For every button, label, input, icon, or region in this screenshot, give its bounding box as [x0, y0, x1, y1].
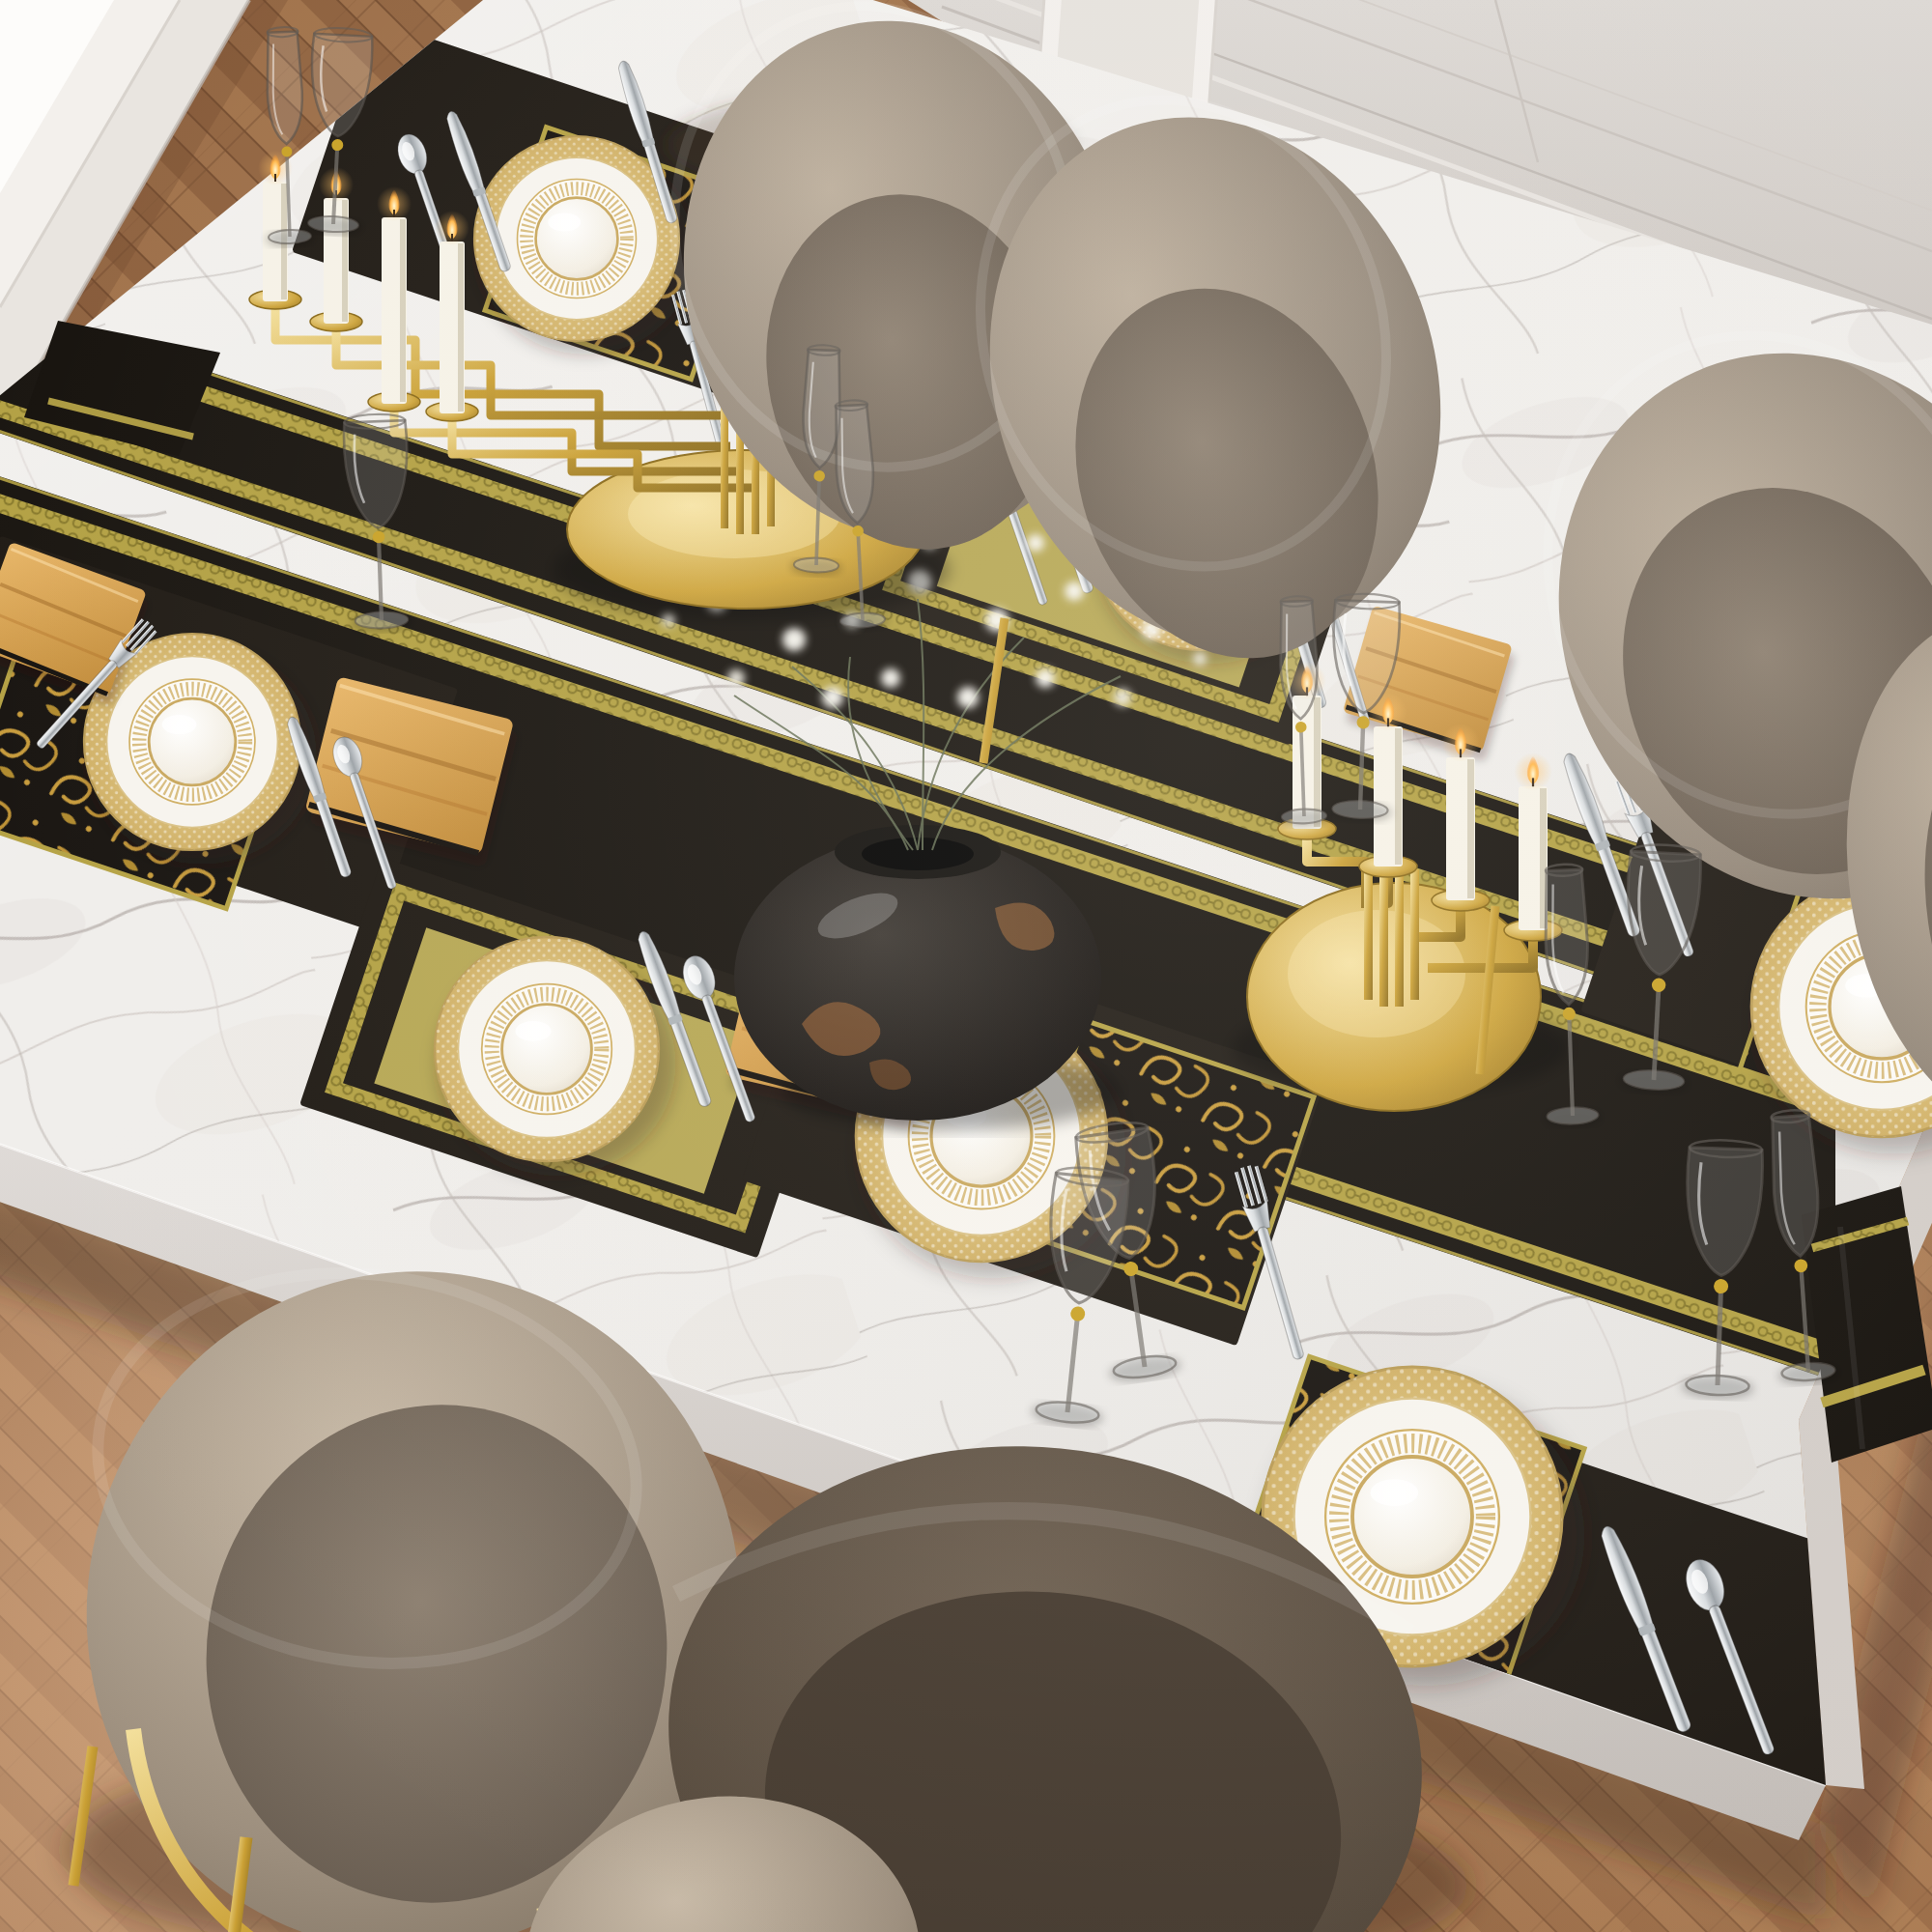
dining-scene: Luxury dining room photographed from abo…	[0, 0, 1932, 1932]
scene-canvas: Luxury dining room photographed from abo…	[0, 0, 1932, 1932]
key-light	[0, 0, 1932, 1932]
